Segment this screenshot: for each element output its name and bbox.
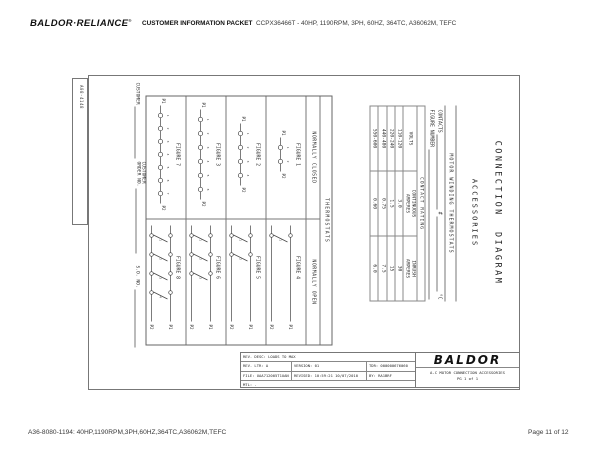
baldor-block: BALDOR A-C MOTOR CONNECTION ACCESSORIES … <box>416 352 520 388</box>
page-of: PG 1 of 1 <box>416 376 519 382</box>
contacts-unit: °C <box>436 293 441 299</box>
svg-text:5: 5 <box>166 166 170 168</box>
baldor-logo: BALDOR <box>416 353 519 368</box>
svg-text:3: 3 <box>166 140 170 142</box>
svg-text:6: 6 <box>206 188 210 190</box>
footer-spec: A36-8080-1194: 40HP,1190RPM,3PH,60HZ,364… <box>28 429 226 436</box>
svg-text:P2: P2 <box>149 324 154 330</box>
nc-figure-drawing: FIGURE 112P1P2 <box>266 96 305 218</box>
contact-rating-cell: 15 <box>386 236 394 301</box>
svg-text:1: 1 <box>238 239 242 241</box>
contact-rating-row: 440-4800.757.5 <box>378 106 386 301</box>
contact-rating-row: 550-6000.606.0 <box>370 106 378 301</box>
svg-text:1: 1 <box>278 239 282 241</box>
no-figure-drawing: FIGURE 81234P1P2 <box>146 219 185 345</box>
figures-grid: THERMOSTATS NORMALLY CLOSED NORMALLY OPE… <box>145 95 332 345</box>
edge-strip-box: A08-4148 <box>72 78 88 225</box>
svg-text:2: 2 <box>286 160 290 162</box>
svg-text:1: 1 <box>286 146 290 148</box>
so-label: S.O. NO. <box>134 265 139 287</box>
title-block: REV. DESC: LOADS TO MAX REV. LTR: A VERS… <box>240 352 520 388</box>
nc-figure-cell: FIGURE 21234P1P2 <box>226 96 265 219</box>
edge-strip-label: A08-4148 <box>79 85 84 109</box>
contact-rating-cell: 110-120 <box>394 106 402 171</box>
svg-text:2: 2 <box>246 146 250 148</box>
svg-text:FIGURE 8: FIGURE 8 <box>174 255 180 278</box>
svg-text:5: 5 <box>206 174 210 176</box>
rotated-drawing: CONNECTION DIAGRAM ACCESSORIES MOTOR WIN… <box>88 75 520 350</box>
contact-rating-cell: 7.5 <box>378 236 386 301</box>
svg-text:3: 3 <box>198 277 202 279</box>
nc-figure-cell: FIGURE 71234567P1P2 <box>146 96 185 219</box>
header-normally-open: NORMALLY OPEN <box>306 219 319 344</box>
motor-spec-header: CCPX36466T - 40HP, 1190RPM, 3PH, 60HZ, 3… <box>256 20 456 27</box>
figure-grid-row: FIGURE 21234P1P2FIGURE 512P1P2 <box>225 96 265 344</box>
revised-by: BY: RA1BRF <box>367 372 415 380</box>
thermostat-block-title: MOTOR WINDING THERMOSTATS <box>444 105 456 301</box>
figure-grid-row: FIGURE 3123456P1P2FIGURE 6123P1P2 <box>185 96 225 344</box>
contacts-blank <box>436 134 441 209</box>
svg-text:2: 2 <box>198 258 202 260</box>
nc-figure-cell: FIGURE 112P1P2 <box>266 96 305 219</box>
customer-line: CUSTOMER <box>134 82 139 158</box>
document-page: BALDOR·RELIANCE® CUSTOMER INFORMATION PA… <box>0 0 600 464</box>
svg-text:3: 3 <box>158 277 162 279</box>
drawing-title: CONNECTION DIAGRAM <box>492 75 502 350</box>
figure-number-line: FIGURE NUMBER <box>428 105 436 301</box>
svg-text:2: 2 <box>206 132 210 134</box>
customer-blank <box>134 106 139 158</box>
svg-text:P1: P1 <box>281 130 286 136</box>
svg-text:P1: P1 <box>201 102 206 108</box>
svg-text:P2: P2 <box>241 187 246 193</box>
svg-text:P2: P2 <box>189 324 194 330</box>
contact-rating-cell: 1.5 <box>386 171 394 236</box>
contact-rating-row: 220-2401.515 <box>386 106 394 301</box>
nc-figure-drawing: FIGURE 71234567P1P2 <box>146 96 185 218</box>
svg-text:2: 2 <box>158 258 162 260</box>
svg-text:FIGURE 2: FIGURE 2 <box>254 142 260 165</box>
contact-rating-cell: 0.75 <box>378 171 386 236</box>
no-figure-cell: FIGURE 41P1P2 <box>266 219 305 345</box>
svg-text:6: 6 <box>166 179 170 181</box>
order-label-2: ORDER NO. <box>135 161 140 186</box>
svg-text:1: 1 <box>198 239 202 241</box>
svg-text:FIGURE 6: FIGURE 6 <box>214 255 220 278</box>
no-figure-drawing: FIGURE 512P1P2 <box>226 219 265 345</box>
svg-text:FIGURE 1: FIGURE 1 <box>294 142 300 165</box>
svg-text:3: 3 <box>246 160 250 162</box>
revised: REVISED: 10:59:21 10/07/2010 <box>292 372 367 380</box>
figure-grid-row: FIGURE 112P1P2FIGURE 41P1P2 <box>265 96 305 344</box>
contact-rating-column: INRUSH AMPERES <box>403 236 417 301</box>
nc-figure-drawing: FIGURE 3123456P1P2 <box>186 96 225 218</box>
no-figure-drawing: FIGURE 41P1P2 <box>266 219 305 345</box>
svg-text:P2: P2 <box>229 324 234 330</box>
nc-figure-cell: FIGURE 3123456P1P2 <box>186 96 225 219</box>
rev-desc: REV. DESC: LOADS TO MAX <box>241 353 415 362</box>
contact-rating-cell: 220-240 <box>386 106 394 171</box>
figure-grid-row: FIGURE 71234567P1P2FIGURE 81234P1P2 <box>146 96 185 344</box>
svg-text:2: 2 <box>238 258 242 260</box>
packet-title: CUSTOMER INFORMATION PACKET <box>142 20 252 27</box>
grid-header-row: NORMALLY CLOSED NORMALLY OPEN <box>305 96 319 344</box>
svg-text:P2: P2 <box>161 205 166 211</box>
svg-text:FIGURE 7: FIGURE 7 <box>174 142 180 165</box>
revision-table: REV. DESC: LOADS TO MAX REV. LTR: A VERS… <box>240 352 416 388</box>
so-line: S.O. NO. <box>134 265 139 347</box>
product-title: A-C MOTOR CONNECTION ACCESSORIES <box>416 368 519 376</box>
contact-rating-table: CONTACT RATINGVOLTSCONTINUOUS AMPERESINR… <box>369 105 425 301</box>
svg-text:2: 2 <box>166 127 170 129</box>
svg-text:1: 1 <box>246 132 250 134</box>
thermostat-info-block: MOTOR WINDING THERMOSTATS CONTACTS # °C … <box>369 105 456 301</box>
contacts-label: CONTACTS <box>436 109 441 132</box>
customer-labels: CUSTOMER CUSTOMER ORDER NO. S.O. NO. <box>122 75 148 350</box>
order-label-1: CUSTOMER <box>140 161 145 183</box>
contact-rating-cell: 440-480 <box>378 106 386 171</box>
footer-page-number: Page 11 of 12 <box>528 429 569 436</box>
svg-text:4: 4 <box>158 296 162 298</box>
grid-header-thermostats: THERMOSTATS <box>319 96 331 344</box>
svg-text:P2: P2 <box>269 324 274 330</box>
contact-rating-column: CONTINUOUS AMPERES <box>403 171 417 236</box>
so-blank <box>134 289 139 347</box>
mtl: MTL: - <box>241 381 415 389</box>
temp-blank <box>436 216 441 291</box>
svg-text:P1: P1 <box>241 116 246 122</box>
contact-rating-cell: 3.0 <box>394 171 402 236</box>
order-blank <box>135 188 140 253</box>
no-figure-cell: FIGURE 81234P1P2 <box>146 219 185 345</box>
svg-text:1: 1 <box>206 118 210 120</box>
svg-text:P2: P2 <box>281 173 286 179</box>
svg-text:1: 1 <box>158 239 162 241</box>
contact-rating-title: CONTACT RATING <box>416 106 424 301</box>
rev-ltr: REV. LTR: A <box>241 362 292 370</box>
customer-order-line: CUSTOMER ORDER NO. <box>135 161 145 253</box>
svg-text:3: 3 <box>206 146 210 148</box>
nc-figure-drawing: FIGURE 21234P1P2 <box>226 96 265 218</box>
registered-mark: ® <box>128 18 131 23</box>
baldor-reliance-logo: BALDOR·RELIANCE® <box>30 18 132 29</box>
svg-text:FIGURE 3: FIGURE 3 <box>214 142 220 165</box>
figure-number-label: FIGURE NUMBER <box>428 109 433 147</box>
contact-rating-cell: 30 <box>394 236 402 301</box>
contacts-hash: # <box>436 211 441 214</box>
svg-text:P1: P1 <box>208 324 213 330</box>
header-normally-closed: NORMALLY CLOSED <box>306 96 319 219</box>
file: FILE: UAA712005T1UAN <box>241 372 292 380</box>
svg-text:P2: P2 <box>201 201 206 207</box>
svg-text:P1: P1 <box>248 324 253 330</box>
contact-rating-column: VOLTS <box>403 106 417 171</box>
customer-label: CUSTOMER <box>134 82 139 104</box>
no-figure-drawing: FIGURE 6123P1P2 <box>186 219 225 345</box>
rev-row: REV. LTR: A VERSION: 01 TDR: 00000067606… <box>241 362 415 371</box>
svg-text:4: 4 <box>206 160 210 162</box>
svg-text:P1: P1 <box>168 324 173 330</box>
svg-text:P1: P1 <box>161 98 166 104</box>
svg-text:4: 4 <box>166 153 170 155</box>
figure-number-blank <box>428 149 433 299</box>
svg-text:4: 4 <box>246 174 250 176</box>
svg-text:P1: P1 <box>288 324 293 330</box>
file-row: FILE: UAA712005T1UAN REVISED: 10:59:21 1… <box>241 372 415 381</box>
svg-text:1: 1 <box>166 114 170 116</box>
svg-text:FIGURE 4: FIGURE 4 <box>294 255 300 278</box>
contacts-line: CONTACTS # °C <box>436 105 444 301</box>
logo-text: BALDOR·RELIANCE <box>30 18 128 29</box>
svg-text:FIGURE 5: FIGURE 5 <box>254 255 260 278</box>
tdr: TDR: 000000676060 <box>367 362 415 370</box>
drawing-subtitle: ACCESSORIES <box>470 75 478 350</box>
contact-rating-cell: 0.60 <box>370 171 378 236</box>
svg-text:7: 7 <box>166 192 170 194</box>
no-figure-cell: FIGURE 512P1P2 <box>226 219 265 345</box>
contact-rating-row: 110-1203.030 <box>394 106 402 301</box>
contact-rating-cell: 6.0 <box>370 236 378 301</box>
version: VERSION: 01 <box>292 362 367 370</box>
no-figure-cell: FIGURE 6123P1P2 <box>186 219 225 345</box>
contact-rating-cell: 550-600 <box>370 106 378 171</box>
